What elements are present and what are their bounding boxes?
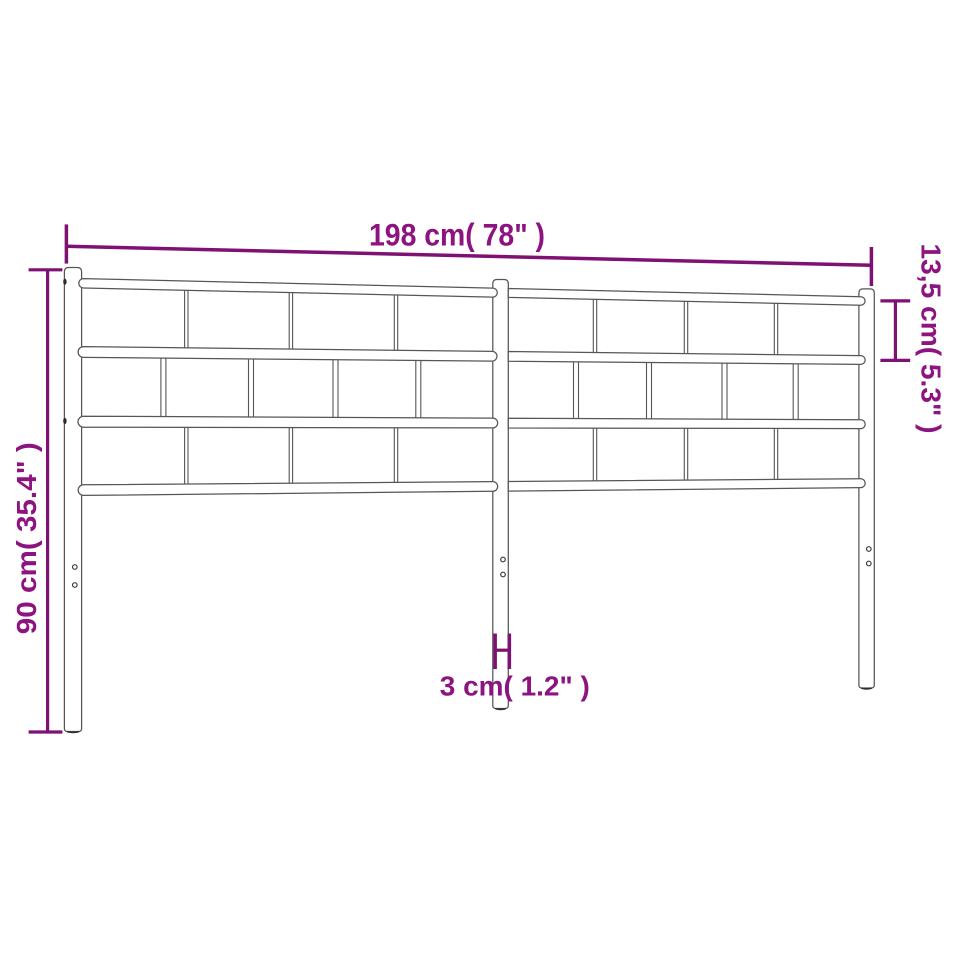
svg-text:90 cm( 35.4" ): 90 cm( 35.4" ): [11, 442, 42, 634]
svg-text:3 cm( 1.2" ): 3 cm( 1.2" ): [440, 671, 590, 702]
svg-text:13,5 cm( 5.3" ): 13,5 cm( 5.3" ): [916, 244, 947, 434]
svg-text:198 cm( 78" ): 198 cm( 78" ): [369, 216, 545, 252]
